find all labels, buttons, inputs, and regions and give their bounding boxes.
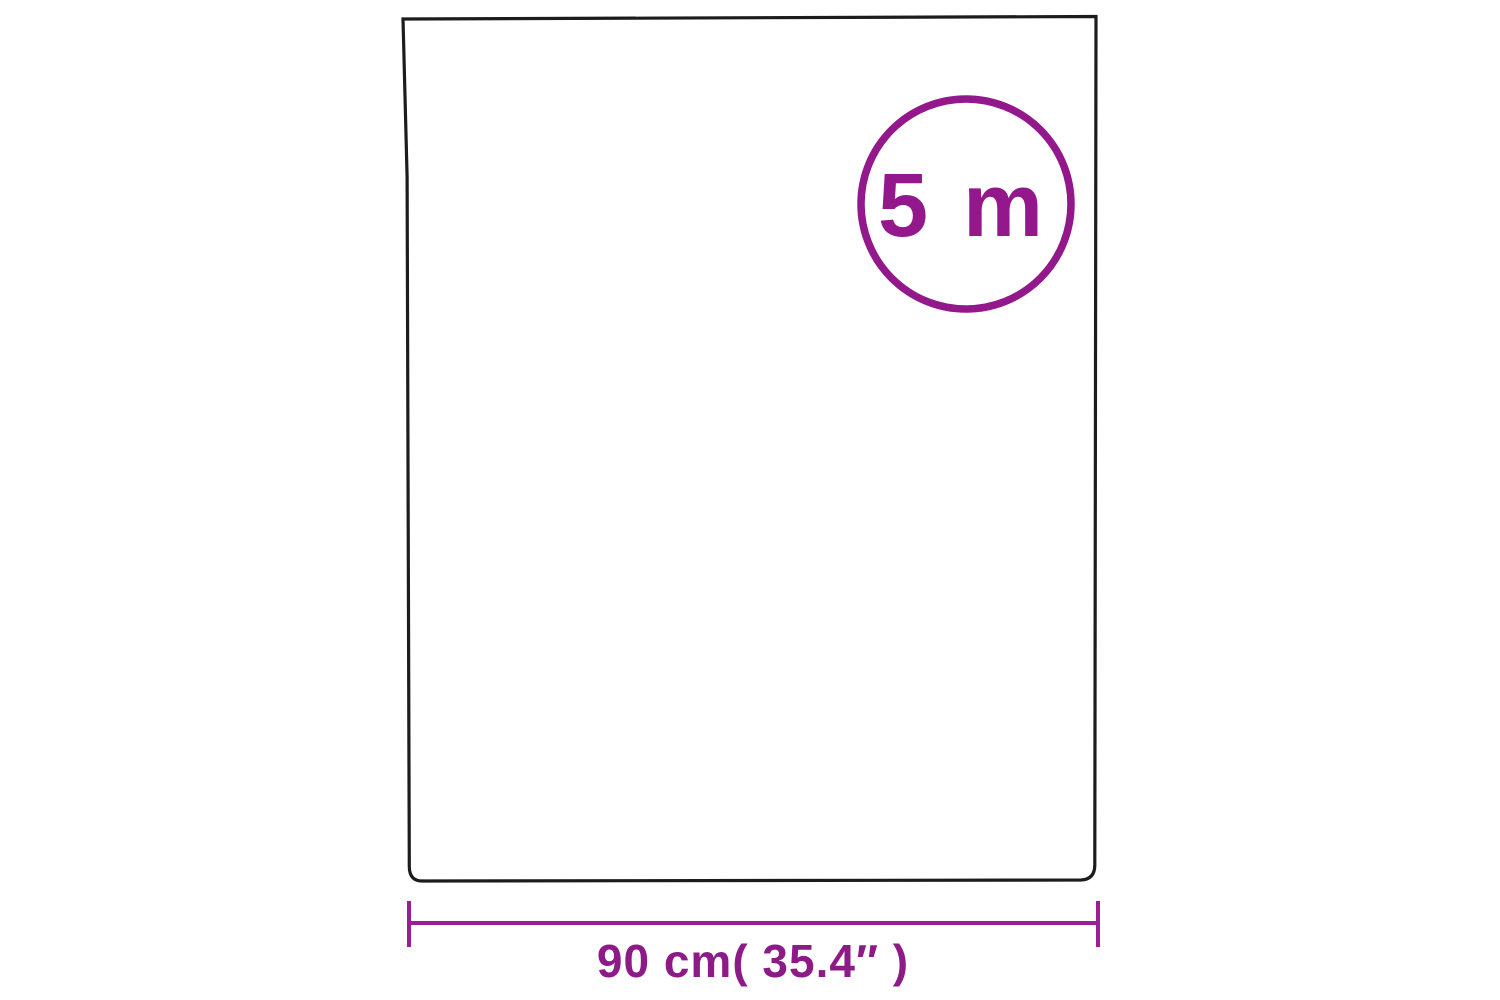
product-dimension-diagram: 5 m 90 cm( 35.4″ ) bbox=[0, 0, 1500, 1000]
width-dimension-label: 90 cm( 35.4″ ) bbox=[597, 935, 909, 987]
film-sheet-outline bbox=[403, 17, 1096, 882]
diagram-canvas: 5 m 90 cm( 35.4″ ) bbox=[0, 0, 1500, 1000]
roll-length-value: 5 m bbox=[878, 156, 1048, 256]
